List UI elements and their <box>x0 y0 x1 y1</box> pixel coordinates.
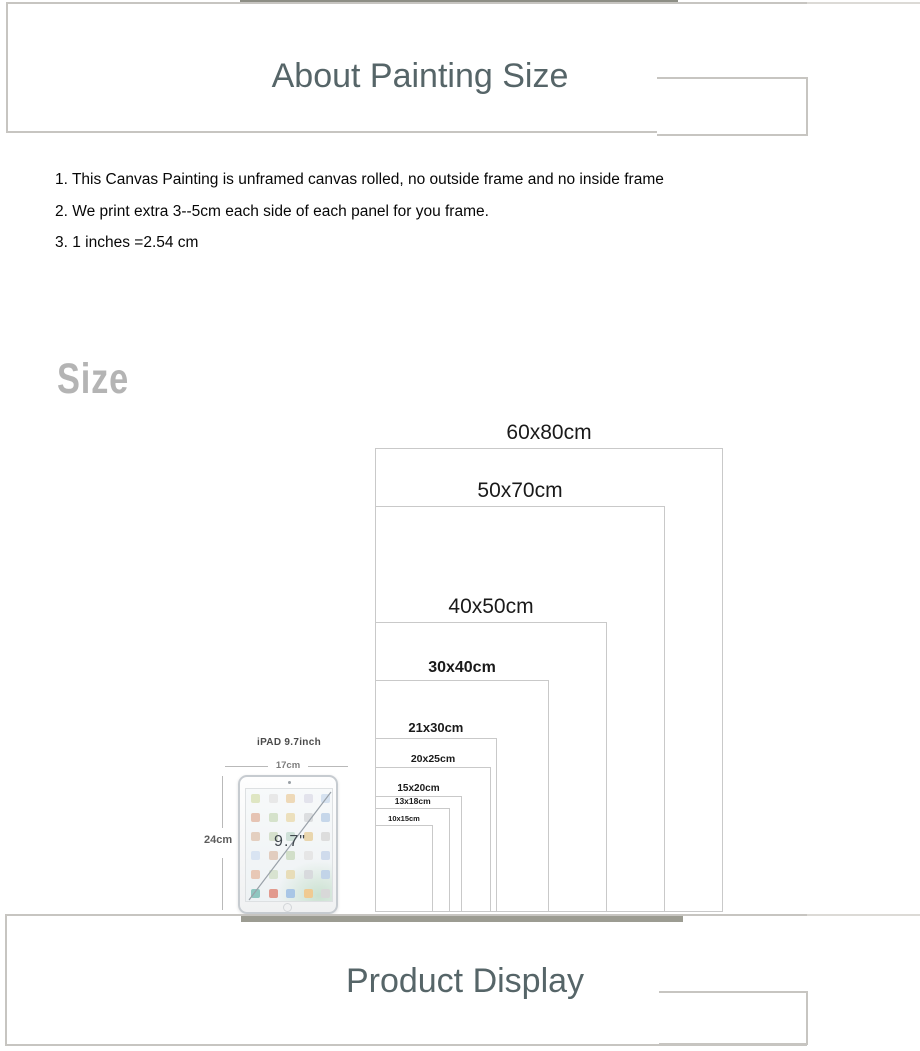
ipad-home-button <box>283 903 292 912</box>
size-rect-label-50x70cm: 50x70cm <box>477 480 562 502</box>
bottom-separator-bar <box>241 916 683 922</box>
size-rect-label-13x18cm: 13x18cm <box>395 797 431 806</box>
size-note-1: 1. This Canvas Painting is unframed canv… <box>55 164 664 196</box>
ipad-screen: 9.7" <box>245 788 333 902</box>
ipad-body: 9.7" <box>238 775 338 914</box>
ipad-width-label: 17cm <box>276 760 300 771</box>
width-measure-line-left <box>225 766 268 767</box>
header-box-notch <box>657 77 808 136</box>
size-rect-label-30x40cm: 30x40cm <box>428 660 496 677</box>
screen-size-label: 9.7" <box>274 833 306 851</box>
size-rect-label-15x20cm: 15x20cm <box>397 784 439 795</box>
about-painting-size-title: About Painting Size <box>272 57 569 96</box>
size-rect-label-40x50cm: 40x50cm <box>448 596 533 618</box>
size-note-2: 2. We print extra 3--5cm each side of ea… <box>55 196 664 228</box>
size-rect-label-20x25cm: 20x25cm <box>411 754 455 765</box>
height-measure-line-bottom <box>222 858 223 910</box>
ipad-height-label: 24cm <box>204 834 232 846</box>
footer-box-notch <box>659 991 808 1045</box>
size-notes: 1. This Canvas Painting is unframed canv… <box>55 164 664 259</box>
size-rect-label-10x15cm: 10x15cm <box>388 815 420 823</box>
ipad-name-label: iPAD 9.7inch <box>257 737 321 748</box>
size-rect-label-60x80cm: 60x80cm <box>506 422 591 444</box>
width-measure-line-right <box>308 766 348 767</box>
ipad-camera-dot <box>288 781 291 784</box>
product-description-page: About Painting Size 1. This Canvas Paint… <box>0 0 920 1051</box>
product-display-title: Product Display <box>346 962 584 1001</box>
size-watermark: Size <box>57 355 129 404</box>
size-note-3: 3. 1 inches =2.54 cm <box>55 227 664 259</box>
size-rect-10x15cm <box>375 825 433 912</box>
size-rect-label-21x30cm: 21x30cm <box>408 721 463 735</box>
height-measure-line-top <box>222 776 223 828</box>
